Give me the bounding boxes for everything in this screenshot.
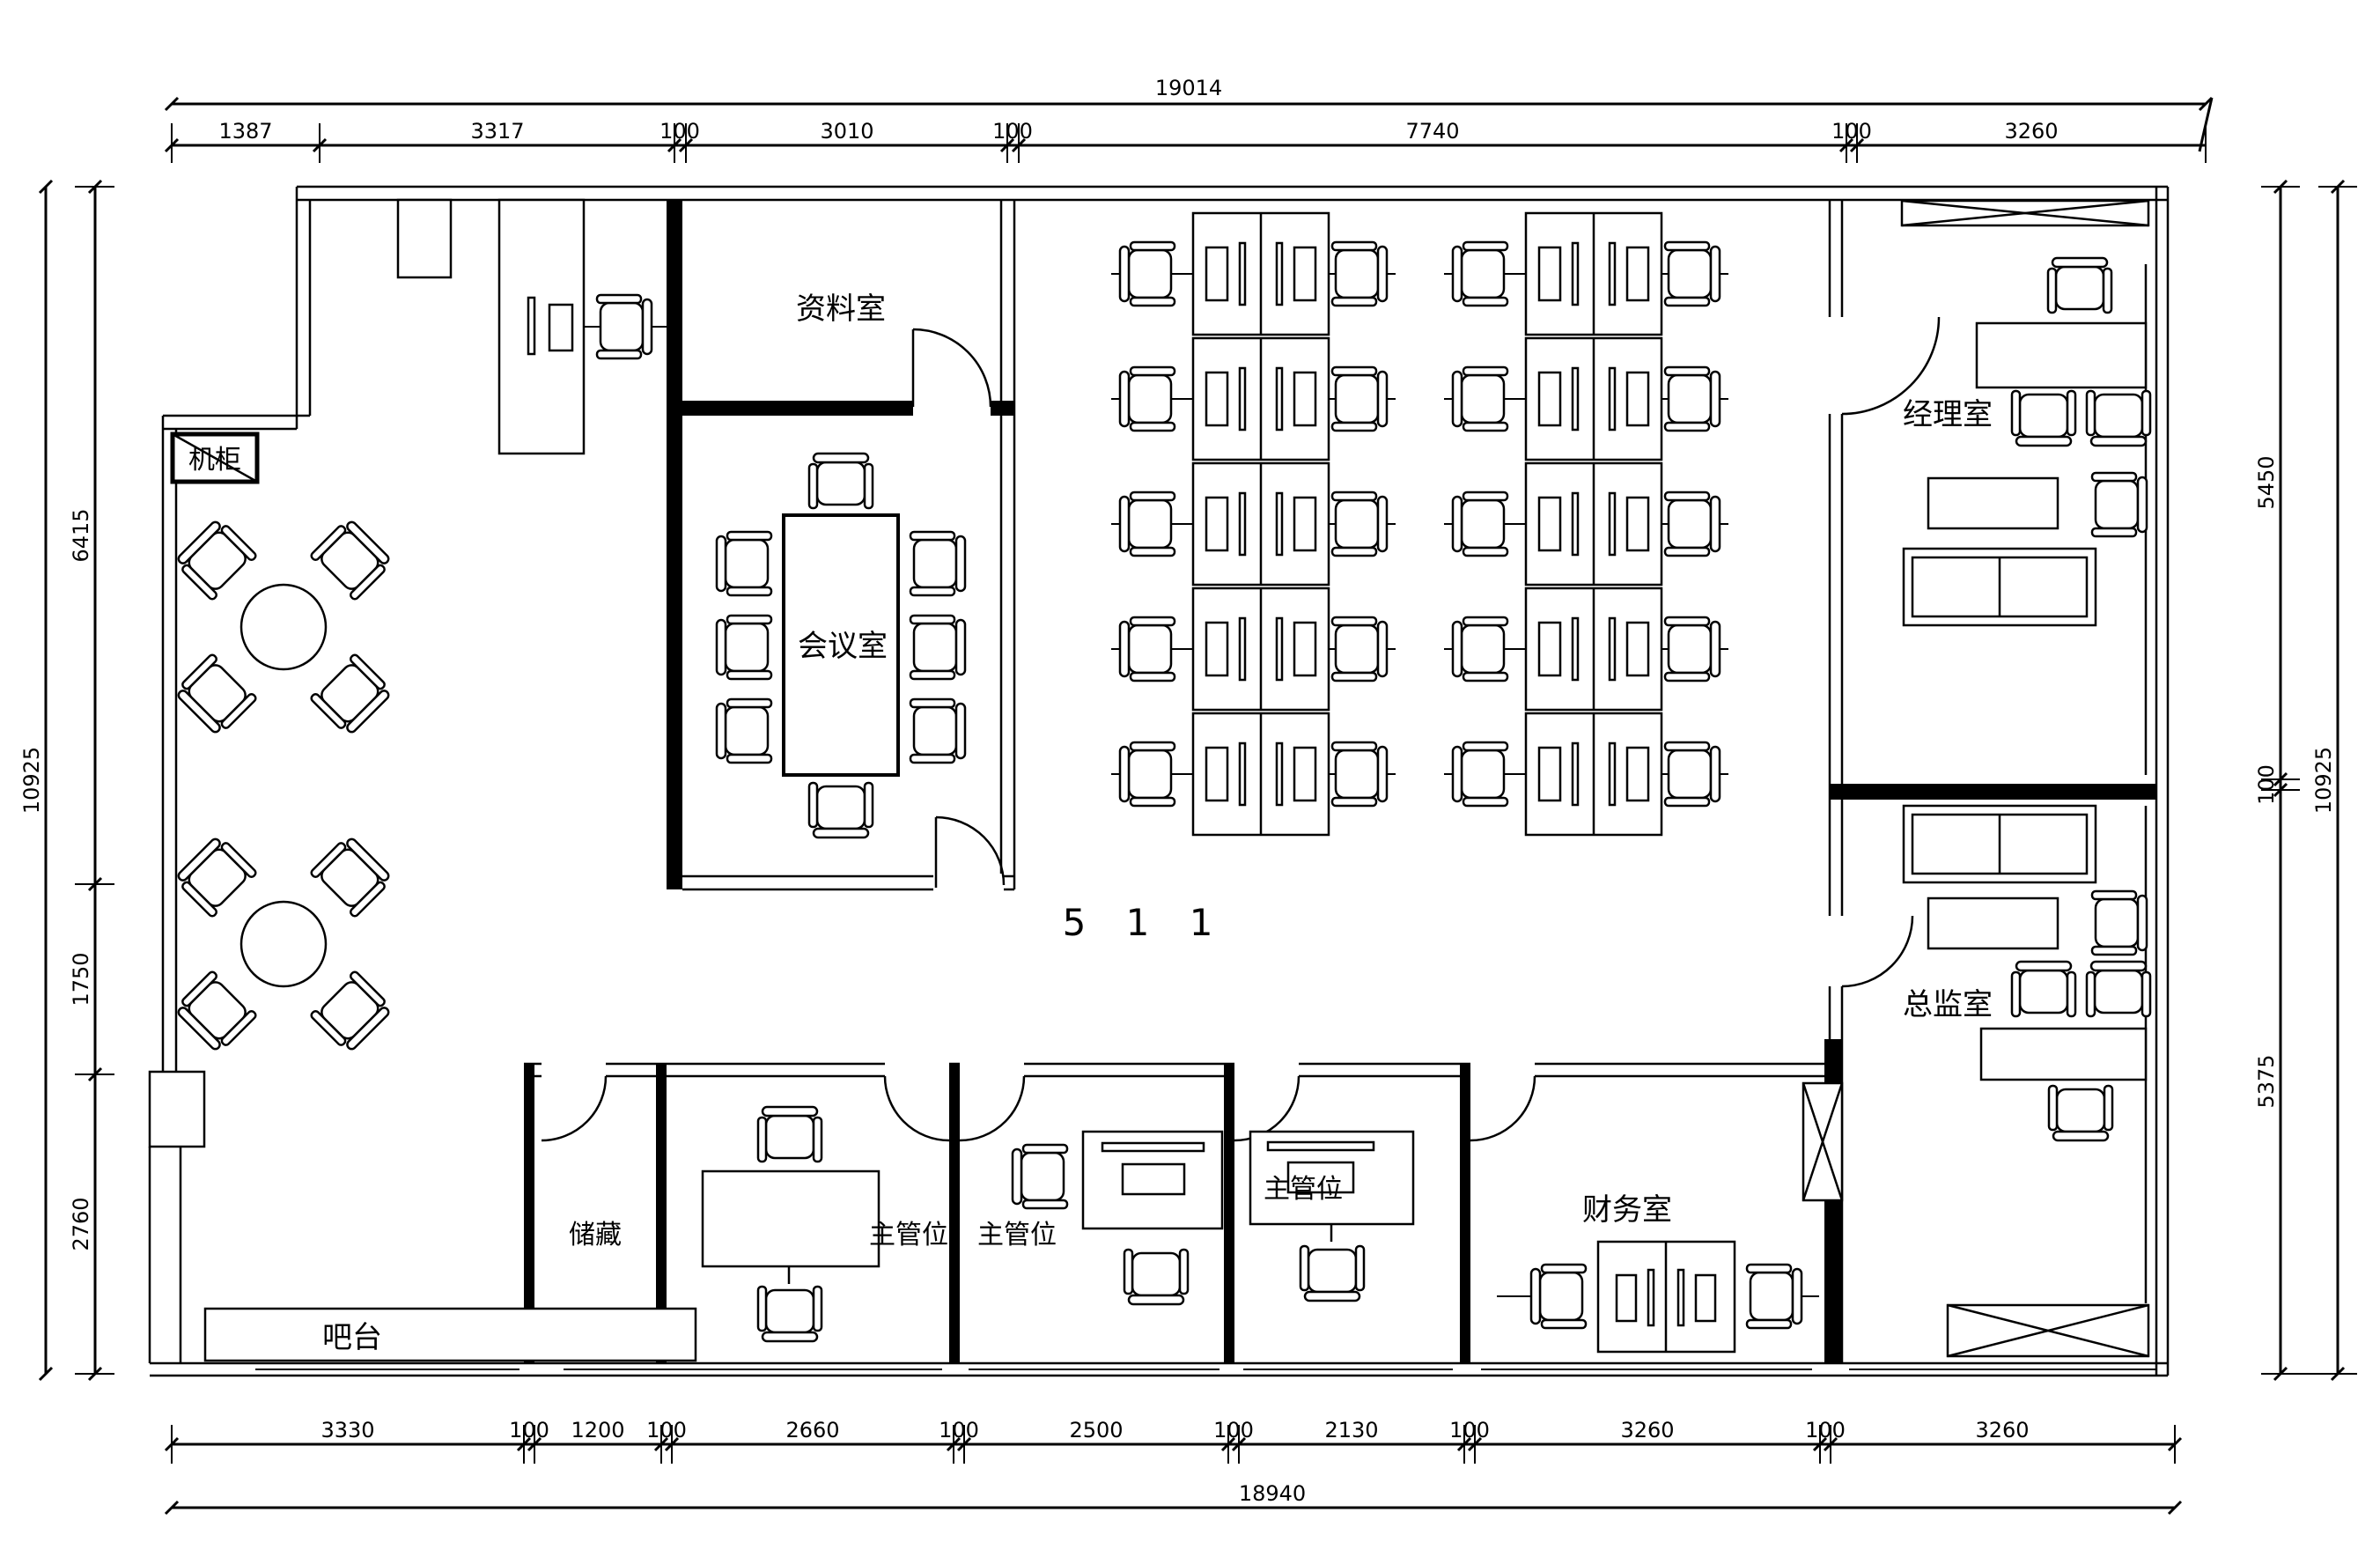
- archive-door-arc: [913, 329, 991, 407]
- director-door-arc: [1842, 916, 1912, 986]
- dimension-top-labels: 19014 1387 3317 100 3010 100 7740 100 32…: [218, 76, 2058, 144]
- svg-text:3330: 3330: [321, 1418, 374, 1442]
- svg-text:2760: 2760: [69, 1197, 93, 1251]
- bar-counter: [205, 1309, 696, 1361]
- svg-text:2500: 2500: [1069, 1418, 1123, 1442]
- label-meeting: 会议室: [798, 629, 888, 664]
- svg-text:5375: 5375: [2254, 1054, 2279, 1108]
- manager-desk: [1977, 323, 2146, 387]
- svg-text:100: 100: [1805, 1418, 1846, 1442]
- svg-text:7740: 7740: [1405, 119, 1459, 144]
- supervisor2-door-arc: [960, 1076, 1024, 1140]
- director-office-furniture: [1904, 806, 2150, 1356]
- supervisor1-door-arc: [885, 1076, 949, 1140]
- svg-text:3260: 3260: [1620, 1418, 1674, 1442]
- svg-text:100: 100: [992, 119, 1033, 144]
- supervisor1-furniture: [703, 1107, 879, 1341]
- svg-text:100: 100: [659, 119, 700, 144]
- label-unit-number: 5 1 1: [1063, 901, 1227, 944]
- label-storage: 储藏: [569, 1220, 622, 1251]
- supervisor3-furniture: [1250, 1132, 1413, 1301]
- coffee-table: [1928, 898, 2058, 948]
- desk: [1083, 1132, 1222, 1228]
- finance-furniture: [1497, 1242, 1819, 1352]
- svg-text:100: 100: [1831, 119, 1872, 144]
- floor-plan: 19014 1387 3317 100 3010 100 7740 100 32…: [0, 0, 2380, 1542]
- cabinet-column: [398, 200, 451, 277]
- round-table-group: [173, 834, 394, 1054]
- label-supervisor-3: 主管位: [1264, 1174, 1343, 1205]
- label-bar: 吧台: [322, 1320, 382, 1355]
- svg-text:100: 100: [509, 1418, 549, 1442]
- label-supervisor-2: 主管位: [977, 1220, 1057, 1251]
- svg-text:100: 100: [1449, 1418, 1490, 1442]
- label-manager: 经理室: [1903, 397, 1993, 432]
- svg-text:3260: 3260: [2004, 119, 2058, 144]
- svg-text:5450: 5450: [2254, 455, 2279, 509]
- shaft-column: [1803, 1083, 1842, 1200]
- dim-top-total: 19014: [1155, 76, 1222, 100]
- dimension-bottom: [166, 1425, 2181, 1514]
- svg-text:3010: 3010: [820, 119, 873, 144]
- svg-text:100: 100: [646, 1418, 687, 1442]
- dim-right-total: 10925: [2311, 747, 2336, 814]
- desk: [703, 1171, 879, 1266]
- director-desk: [1981, 1029, 2146, 1080]
- dimension-bottom-labels: 3330 100 1200 100 2660 100 2500 100 2130…: [321, 1418, 2029, 1506]
- label-director: 总监室: [1903, 987, 1993, 1022]
- svg-text:1387: 1387: [218, 119, 272, 144]
- workstations: [1111, 213, 1728, 835]
- coffee-table: [1928, 478, 2058, 528]
- svg-text:2660: 2660: [785, 1418, 839, 1442]
- floor-plan-canvas: 19014 1387 3317 100 3010 100 7740 100 32…: [0, 0, 2380, 1542]
- svg-text:3317: 3317: [470, 119, 524, 144]
- svg-text:100: 100: [2254, 764, 2279, 805]
- office-chair-icon: [597, 295, 652, 358]
- label-server-cabinet: 机柜: [188, 445, 241, 476]
- svg-text:1200: 1200: [571, 1418, 624, 1442]
- dim-bottom-total: 18940: [1239, 1481, 1306, 1506]
- dimension-right-labels: 5450 100 5375 10925: [2254, 455, 2336, 1108]
- reception-desk: [499, 200, 667, 454]
- svg-text:2130: 2130: [1324, 1418, 1378, 1442]
- furniture: [173, 200, 2150, 1361]
- round-table-group: [173, 517, 394, 737]
- supervisor2-furniture: [1013, 1132, 1222, 1304]
- storage-door-arc: [542, 1076, 606, 1140]
- label-finance: 财务室: [1582, 1192, 1672, 1228]
- svg-text:100: 100: [939, 1418, 979, 1442]
- svg-text:3260: 3260: [1975, 1418, 2029, 1442]
- label-supervisor-1: 主管位: [869, 1220, 948, 1251]
- finance-door-arc: [1470, 1076, 1535, 1140]
- dim-left-total: 10925: [19, 747, 44, 814]
- dimension-left-labels: 10925 6415 1750 2760: [19, 508, 93, 1251]
- svg-text:6415: 6415: [69, 508, 93, 562]
- svg-text:100: 100: [1213, 1418, 1254, 1442]
- svg-text:1750: 1750: [69, 952, 93, 1006]
- label-archive: 资料室: [796, 291, 886, 327]
